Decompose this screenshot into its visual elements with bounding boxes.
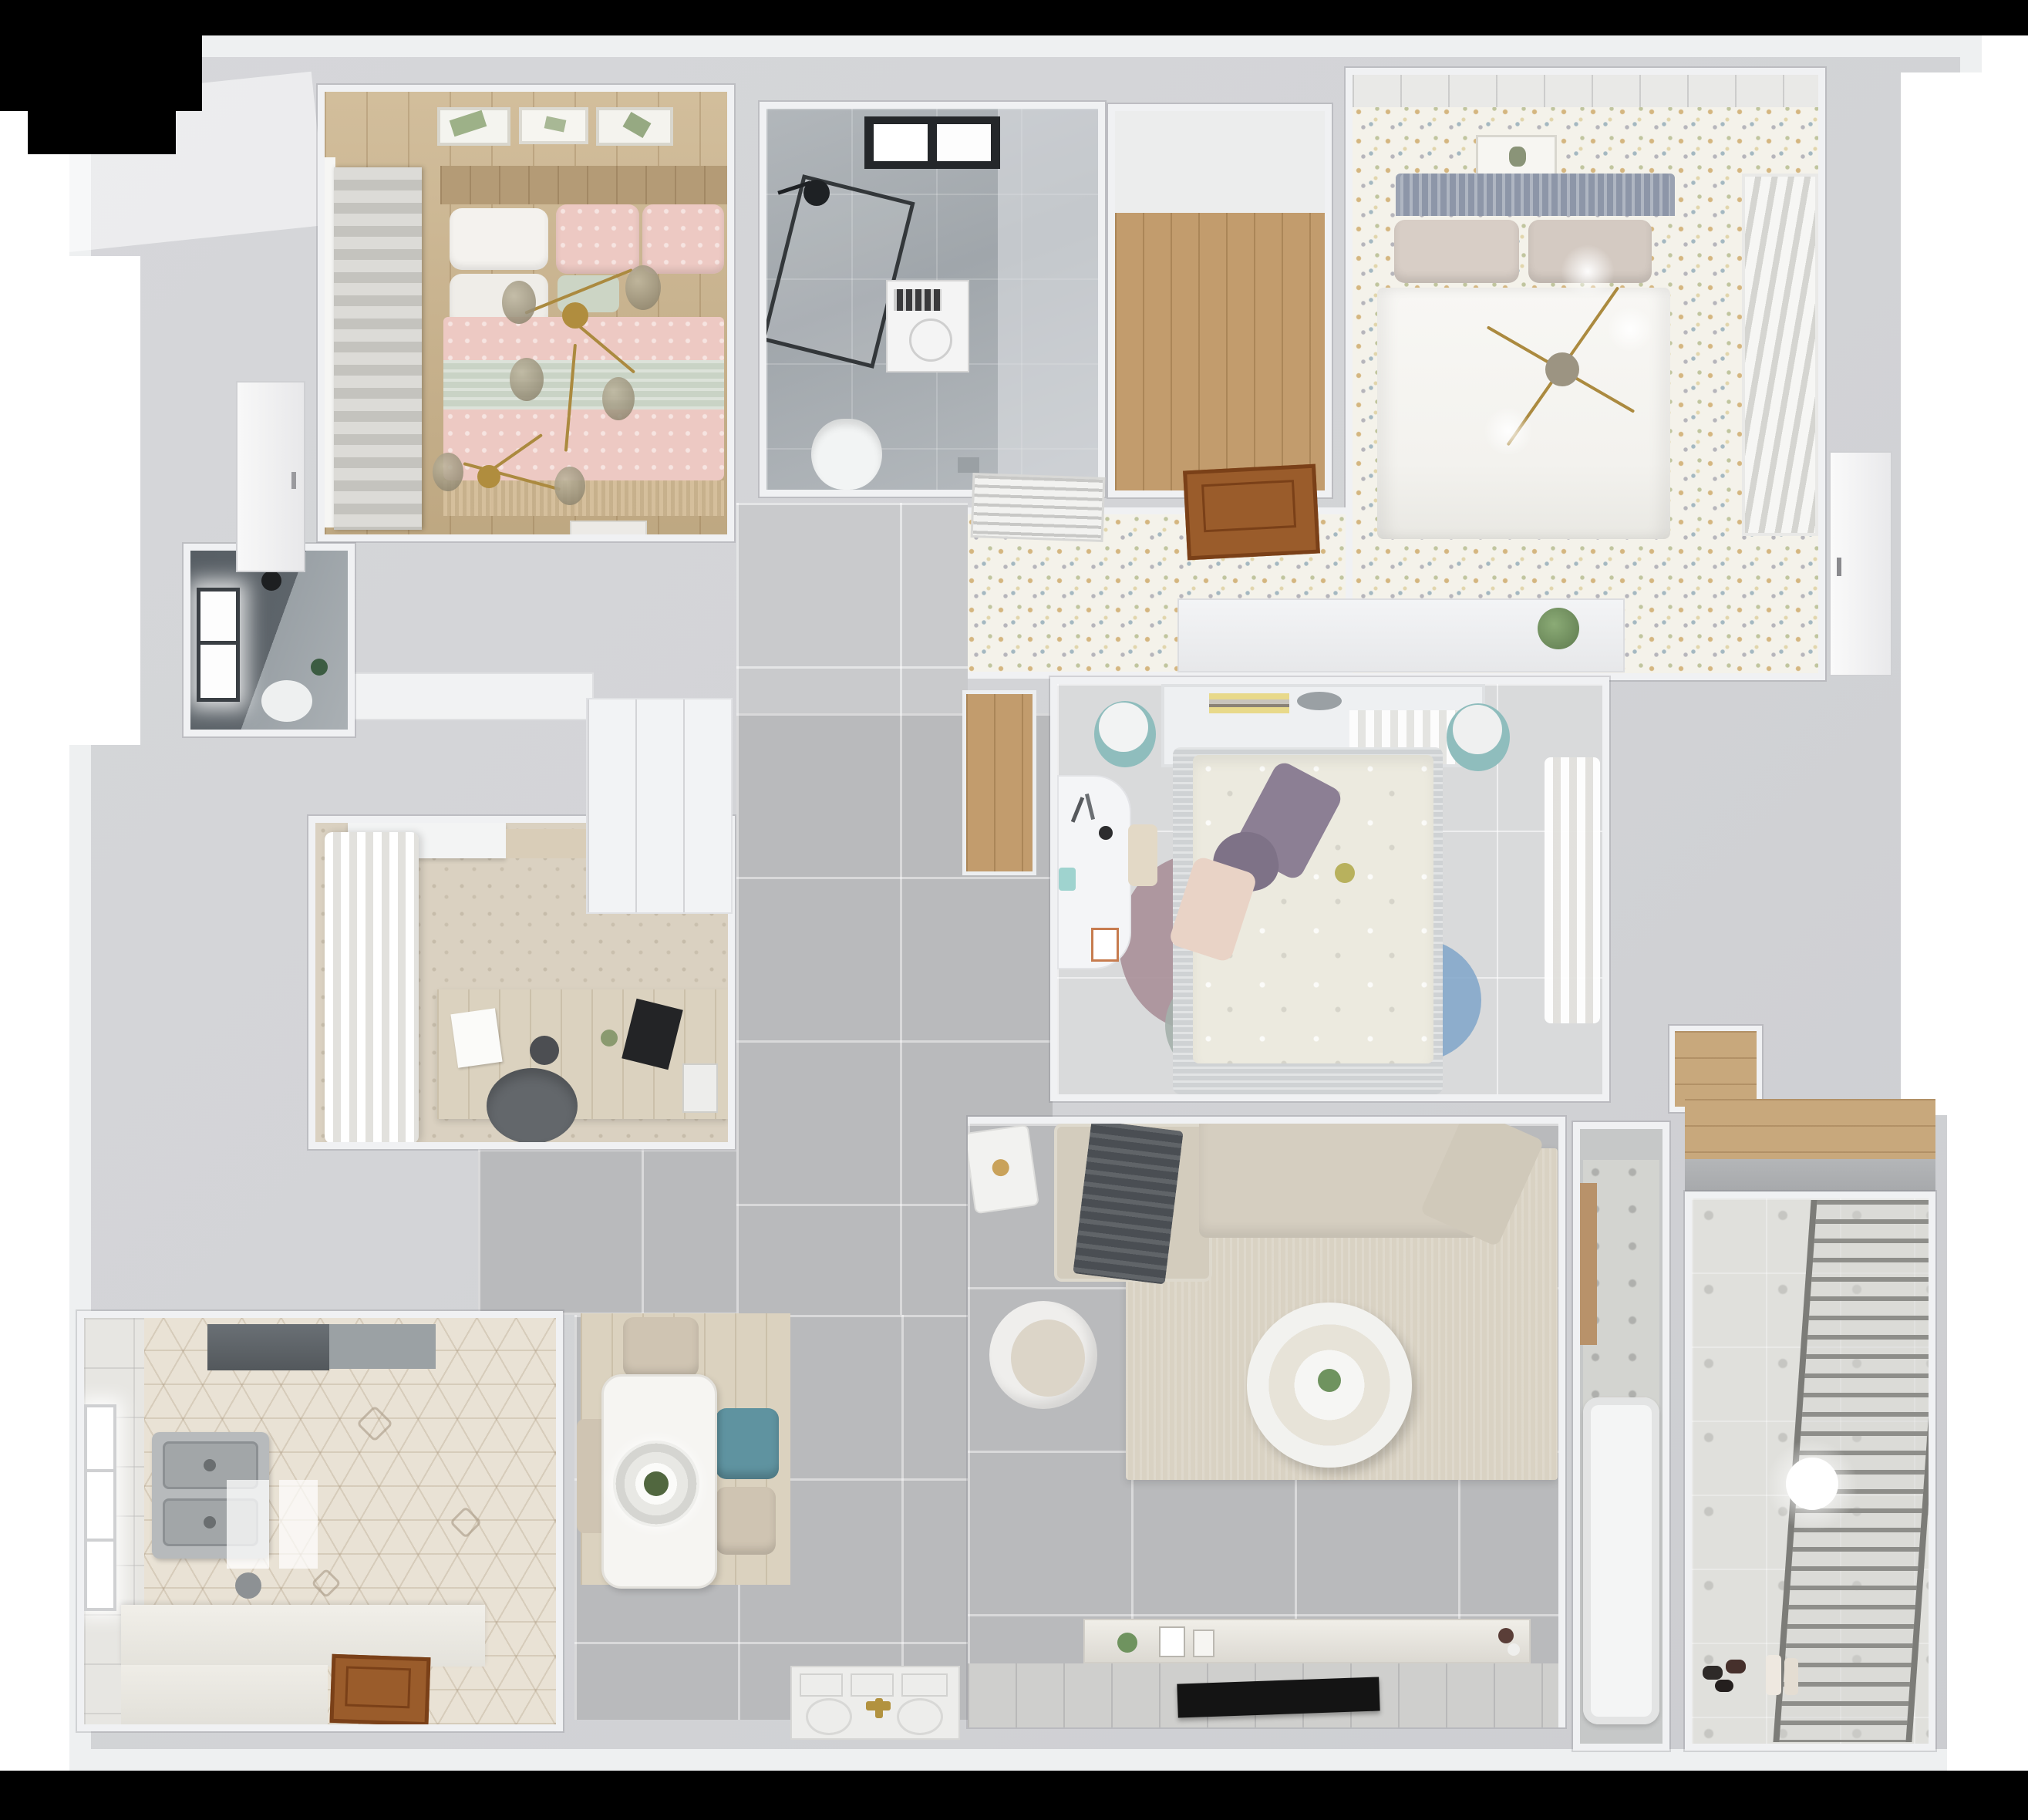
console-decor [1498,1628,1514,1643]
bed-second [1173,747,1443,1094]
stool-top [1453,705,1502,754]
tv-flat [1177,1677,1380,1717]
dining-chair-beige [623,1317,699,1377]
ac-vent-grille [971,473,1106,542]
console-plant [1117,1633,1137,1653]
study-desk [437,989,728,1119]
door-leaf-master [1829,451,1892,676]
hall-wood-niche [962,690,1036,875]
toilet [261,680,312,722]
door-gold-handle [875,1698,883,1718]
chandelier-gold-branch [433,431,595,531]
chandelier-bulb [433,453,463,491]
ceiling-lamp [1786,1458,1838,1510]
floorplan-scene [0,0,2028,1820]
bottles [1766,1655,1781,1695]
room-bathroom-dark [184,544,355,736]
dining-chair-teal [716,1408,779,1479]
room-kitchen [77,1311,563,1731]
wavy-curtains [325,832,419,1144]
washing-machine [886,280,969,372]
light-reflection [227,1480,269,1569]
toilet [811,419,882,490]
niche-wood-floor [1115,213,1325,490]
desk-cup [530,1036,559,1065]
wall-art-frame [596,107,673,146]
shoes [1726,1660,1746,1673]
hall-wardrobe-white [586,698,733,914]
pillow-beige [1394,220,1519,283]
washer-controls [894,289,942,311]
pillow-pink [642,204,724,274]
pendant-ring-lamp [613,1441,699,1527]
side-table [968,1124,1039,1215]
armchair [989,1301,1097,1417]
room-bedroom-master [1346,68,1825,680]
chandelier-hub [477,465,500,488]
kitchen-window [84,1404,116,1611]
light-reflection [279,1480,318,1569]
wall-art-frame [437,107,510,146]
shoes [1715,1680,1733,1692]
room-bathroom-main [760,102,1105,497]
chandelier-glow [1561,244,1615,298]
outside-notch-right [1901,72,2028,1115]
niche-back-wall [1115,111,1325,213]
art-leaves [544,116,567,132]
door-arc [806,1698,852,1735]
chandelier-bulb [502,281,536,324]
towel-rail-wood [1580,1183,1597,1345]
paper-sheets [450,1008,502,1067]
sink-drain [204,1459,216,1471]
sheer-curtains [1545,757,1600,1023]
art-leaves [450,110,487,137]
room-bathroom-tub [1573,1122,1669,1751]
laptop-black [622,999,683,1070]
room-entry-closet [1108,104,1332,497]
washer-door [909,318,952,362]
side-table-flower [991,1158,1010,1178]
gold-sprig [1335,863,1355,883]
desk-plant [601,1030,618,1046]
pendant-plant [644,1471,669,1496]
bright-window [197,588,240,702]
balcony-overhead-shelf [1685,1099,1935,1161]
chandelier-gold-cross [1468,275,1653,460]
outside-notch-right-bottom [1947,1115,2028,1772]
range-hood [207,1324,329,1370]
shoes [1703,1666,1723,1680]
study-tall-cabinet-top [351,672,594,720]
room-living [968,1117,1565,1727]
door-panel-line [851,1673,894,1697]
bottles [1784,1658,1798,1695]
chandelier-bulb [510,358,544,401]
chandelier-bulb [554,467,585,505]
books-stack [1209,693,1289,713]
door-panel-line [901,1673,948,1697]
room-balcony-laundry [1685,1191,1935,1751]
open-wood-door [1183,464,1320,561]
sofa-throw-dark [1073,1120,1183,1284]
hall-west [478,1149,736,1315]
door-handle [1837,558,1841,576]
cooktop-counter [329,1324,436,1369]
pillow-pink [556,204,639,274]
hall-upper [736,503,968,713]
wood-door-panel [329,1654,430,1726]
desk-pens [1085,794,1095,820]
door-panel-inset [1201,480,1296,532]
chandelier-bulb [625,265,661,310]
hex-motif [450,1506,482,1539]
roman-shade [334,167,422,530]
door-panel-inset [345,1666,411,1708]
pendant-lamp-black [261,571,281,591]
skylight-window [864,116,1000,169]
faucet [235,1572,261,1599]
door-leaf-white [236,381,305,572]
floor-drain [958,457,979,473]
chandelier-hub [562,302,588,329]
window-mullion [200,641,236,645]
bathtub [1583,1397,1659,1724]
console-decor [1508,1643,1520,1656]
armchair-seat [1011,1319,1085,1397]
desk-hooks [1091,928,1119,962]
art-plant [1509,147,1526,167]
desk-glass [1059,868,1076,891]
wall-art-frame [519,107,588,144]
zone-divider [998,109,1098,490]
console-frames [1159,1626,1185,1657]
window-mullion [87,1469,113,1472]
front-door-plan [790,1666,960,1740]
outside-notch-left [0,256,140,745]
sink-drain [204,1516,216,1528]
chandelier-glow [1607,306,1653,352]
white-bench [570,521,647,536]
coffee-table-round [1247,1303,1412,1468]
balcony-shelf-edge [1685,1159,1935,1193]
dining-chair-beige [716,1487,776,1555]
room-bedroom-pink [318,85,734,541]
frame-top-left-blob [28,110,176,154]
art-leaves [623,112,652,138]
desk-knob [1099,826,1113,840]
table-plant [1318,1369,1341,1392]
console-frames [1193,1630,1214,1657]
door-panel-line [800,1673,843,1697]
rattan-headboard [1400,174,1670,216]
room-bedroom-second [1050,677,1609,1101]
chandelier-glow [1484,406,1533,456]
door-handle [291,472,296,489]
frame-top-left-blob [0,35,202,111]
desk-chair-pale [1128,824,1157,886]
stool-teal [1094,701,1156,767]
chandelier-bulb [602,377,635,420]
frame-top-band [0,0,2028,35]
bowl [1297,692,1342,710]
pillow-white [450,208,548,270]
hex-motif [311,1568,342,1599]
chandelier-hub [1545,352,1579,386]
keyboard-white [682,1063,718,1113]
skylight-pane [937,124,991,161]
stool-top [1099,703,1148,752]
skylight-pane [874,124,928,161]
door-arc [897,1698,943,1735]
window-mullion [87,1539,113,1542]
counter-white [121,1665,328,1724]
plant [311,659,328,676]
tv-console [1083,1619,1531,1663]
wall-art-frame [1476,135,1557,177]
hex-motif [356,1405,393,1442]
stool-teal [1447,703,1510,771]
frame-bottom-band [0,1771,2028,1820]
desk-chair-gray [487,1068,578,1144]
desk-pens [1071,797,1084,822]
headboard [440,166,727,204]
potted-plant [1538,608,1579,649]
wardrobe-louvered [1742,174,1818,536]
ceiling-trim [1353,75,1818,107]
